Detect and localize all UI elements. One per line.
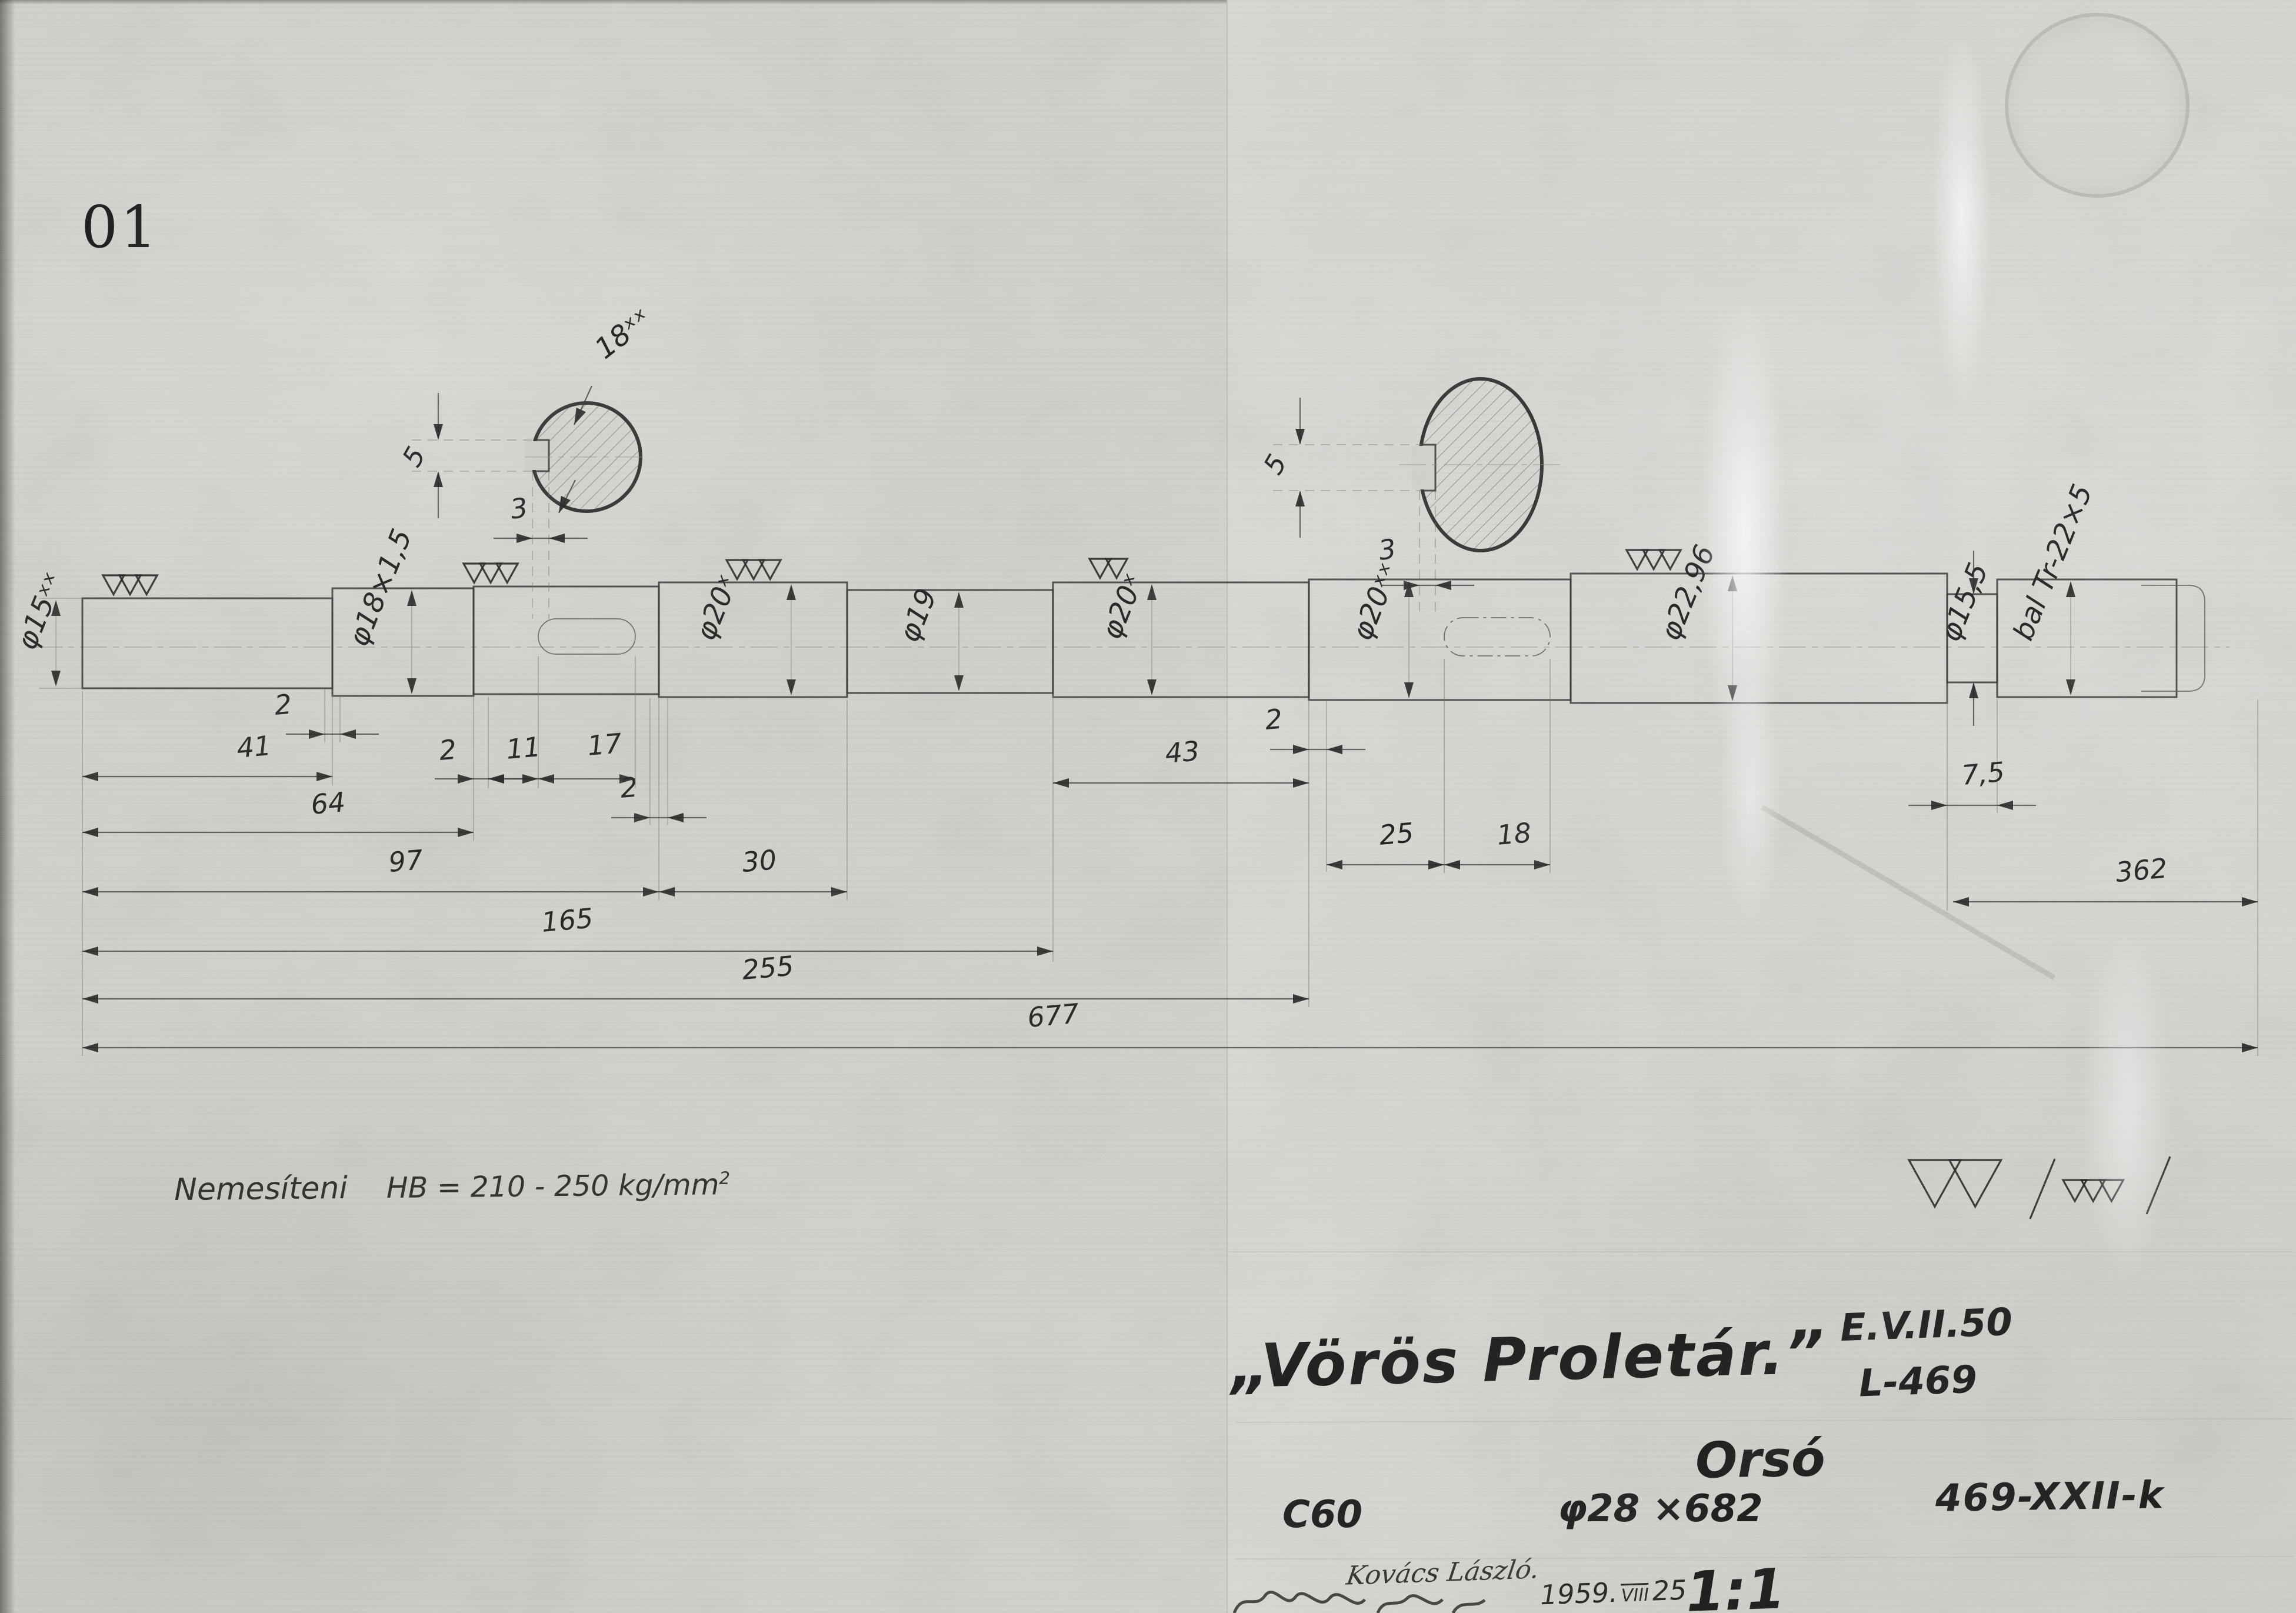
dimension-arrow [668, 813, 684, 822]
dimension-arrow [1295, 491, 1305, 506]
dimension-label: 11 [505, 731, 542, 765]
material-note: NemesíteniHB = 210 - 250 kg/mm2 [174, 1167, 731, 1208]
dimension-arrow [538, 774, 554, 784]
dimension-arrow [458, 828, 474, 837]
material-note-superscript: 2 [719, 1168, 730, 1188]
dimension-label: 17 [586, 727, 623, 762]
material-grade: C60 [1282, 1493, 1362, 1537]
dimension-label: 255 [741, 950, 795, 986]
shaft-section-s8 [1571, 574, 1947, 703]
shaft-section-s4 [659, 582, 847, 697]
dimension-label: 5 [396, 441, 432, 472]
shaft-end-cap [2141, 585, 2205, 691]
dimension-arrow [831, 887, 847, 897]
dimension-label: 7,5 [1960, 756, 2006, 791]
dimension-arrow [407, 590, 416, 606]
dimension-arrow [522, 774, 538, 784]
dimension-label: 2 [273, 688, 293, 721]
detail-diameter-label: 18ˣˣ [589, 302, 657, 365]
drawing-line [1762, 807, 2054, 978]
drawing-date: 1959.VIII25 [1539, 1574, 1687, 1611]
dimension-chains: 24164211172973016525567743225187,5362 [82, 688, 2258, 1052]
dimension-arrow [787, 584, 796, 600]
dimension-arrow [82, 994, 98, 1004]
diameter-label: φ15ˣˣ [10, 568, 71, 654]
dimension-arrow [309, 729, 325, 739]
dimension-arrow [2066, 581, 2075, 597]
keyway-slot [1444, 618, 1550, 656]
dimension-arrow [1534, 860, 1550, 869]
diameter-label: bal Tr-22×5 [2007, 480, 2099, 645]
sheet-number: 01 [81, 194, 159, 261]
drawing-scale: 1:1 [1685, 1557, 1786, 1613]
dimension-label: 677 [1026, 998, 1080, 1034]
dimension-arrow [1444, 860, 1460, 869]
date-month: VIII [1621, 1585, 1649, 1607]
code-line2: L-469 [1858, 1358, 1978, 1406]
dimension-arrow [1053, 778, 1069, 788]
dimension-arrow [407, 678, 416, 694]
diameter-label: φ20ˣˣ [1345, 559, 1406, 645]
partial-signature-scribble [1234, 1592, 1485, 1613]
dimension-arrow [1931, 801, 1947, 810]
dimension-arrow [1404, 581, 1419, 590]
dimension-arrow [954, 675, 964, 691]
blank-size: φ28 ×682 [1558, 1487, 1763, 1531]
shaft-section-s6 [1053, 582, 1309, 697]
dimension-label: 2 [619, 771, 639, 804]
dimension-arrow [2242, 1043, 2258, 1052]
dimension-label: 165 [540, 902, 594, 938]
dimension-label: 18 [1495, 817, 1532, 851]
keyway-notch-fill [524, 441, 549, 470]
diameter-label: φ19 [892, 584, 944, 647]
dimension-arrow [1969, 682, 1978, 698]
dimension-arrow [1295, 429, 1305, 445]
dimension-arrow [643, 887, 659, 897]
dimension-arrow [1327, 745, 1342, 754]
dimension-arrow [51, 671, 61, 686]
dimension-label: 97 [387, 844, 424, 878]
dimension-label: 25 [1378, 817, 1415, 851]
drawing-line [1235, 1419, 2294, 1422]
dimension-arrow [1327, 860, 1342, 869]
shaft-section-s7 [1309, 579, 1571, 700]
dimension-arrow [1293, 778, 1309, 788]
dimension-label: 3 [1377, 532, 1398, 566]
dimension-arrow [82, 887, 98, 897]
dimension-arrow [1435, 581, 1451, 590]
dimension-arrow [2242, 897, 2258, 907]
dimension-label: 41 [235, 729, 272, 764]
dimension-arrow [1728, 575, 1737, 591]
dimension-arrow [1147, 679, 1157, 695]
dimension-arrow [82, 828, 98, 837]
dimension-arrow [1293, 994, 1309, 1004]
dimension-label: 43 [1164, 735, 1201, 769]
material-note-label: Nemesíteni [174, 1171, 348, 1208]
dimension-label: 64 [309, 786, 346, 821]
dimension-arrow [434, 471, 443, 487]
keyway-slot [538, 619, 635, 654]
dimension-label: 5 [1257, 449, 1293, 479]
date-year: 1959. [1539, 1577, 1618, 1611]
dimension-arrow [1953, 897, 1969, 907]
dimension-arrow [434, 424, 443, 440]
part-name: Orsó [1695, 1429, 1825, 1489]
drawing-line [2147, 1157, 2170, 1214]
dimension-arrow [340, 729, 356, 739]
dimension-label: 3 [508, 491, 530, 525]
dimension-arrow [82, 947, 98, 956]
dimension-arrow [1997, 801, 2013, 810]
blueprint-sheet: φ15ˣˣφ18×1,5φ20ˣφ19φ20ˣφ20ˣˣφ22,96φ15,5b… [0, 0, 2296, 1613]
keyway-notch-fill [1411, 446, 1435, 489]
dimension-label: 30 [741, 844, 778, 878]
dimension-label: 362 [2114, 852, 2168, 888]
dimension-arrow [954, 592, 964, 608]
shaft-section-s5 [847, 590, 1053, 693]
date-day: 25 [1652, 1574, 1687, 1607]
dimension-arrow [1293, 745, 1309, 754]
keyway-detail-left: 5318ˣˣ [396, 302, 657, 619]
material-note-value: HB = 210 - 250 kg/mm2 [386, 1168, 731, 1205]
dimension-arrow [659, 887, 675, 897]
dimension-arrow [488, 774, 504, 784]
dimension-arrow [2066, 679, 2075, 695]
dimension-arrow [549, 534, 565, 543]
dimension-arrow [82, 772, 98, 781]
company-title: „Vörös Proletár.” [1230, 1318, 1827, 1402]
drawing-number: 469-XXII-k [1935, 1474, 2165, 1520]
dimension-arrow [458, 774, 474, 784]
dimension-label: 2 [1264, 703, 1284, 736]
diameter-label: φ20ˣ [1095, 569, 1151, 644]
dimension-arrow [316, 772, 332, 781]
dimension-arrow [634, 813, 650, 822]
dimension-arrow [1404, 682, 1414, 698]
surface-finish-note [1909, 1157, 2170, 1219]
code-line1: E.V.II.50 [1840, 1301, 2013, 1350]
dimension-arrow [787, 679, 796, 695]
keyway-detail-right: 53 [1257, 379, 1565, 616]
diameter-label: φ15,5 [1934, 558, 1995, 646]
dimension-arrow [82, 1043, 98, 1052]
drawing-line [2030, 1159, 2055, 1219]
dimension-arrow [1037, 947, 1053, 956]
dimension-label: 2 [438, 734, 458, 766]
dimension-arrow [1728, 685, 1737, 701]
dimension-arrow [516, 534, 532, 543]
shaft-section-s1 [82, 598, 332, 688]
shaft-section-s3 [474, 586, 659, 694]
dimension-arrow [1428, 860, 1444, 869]
